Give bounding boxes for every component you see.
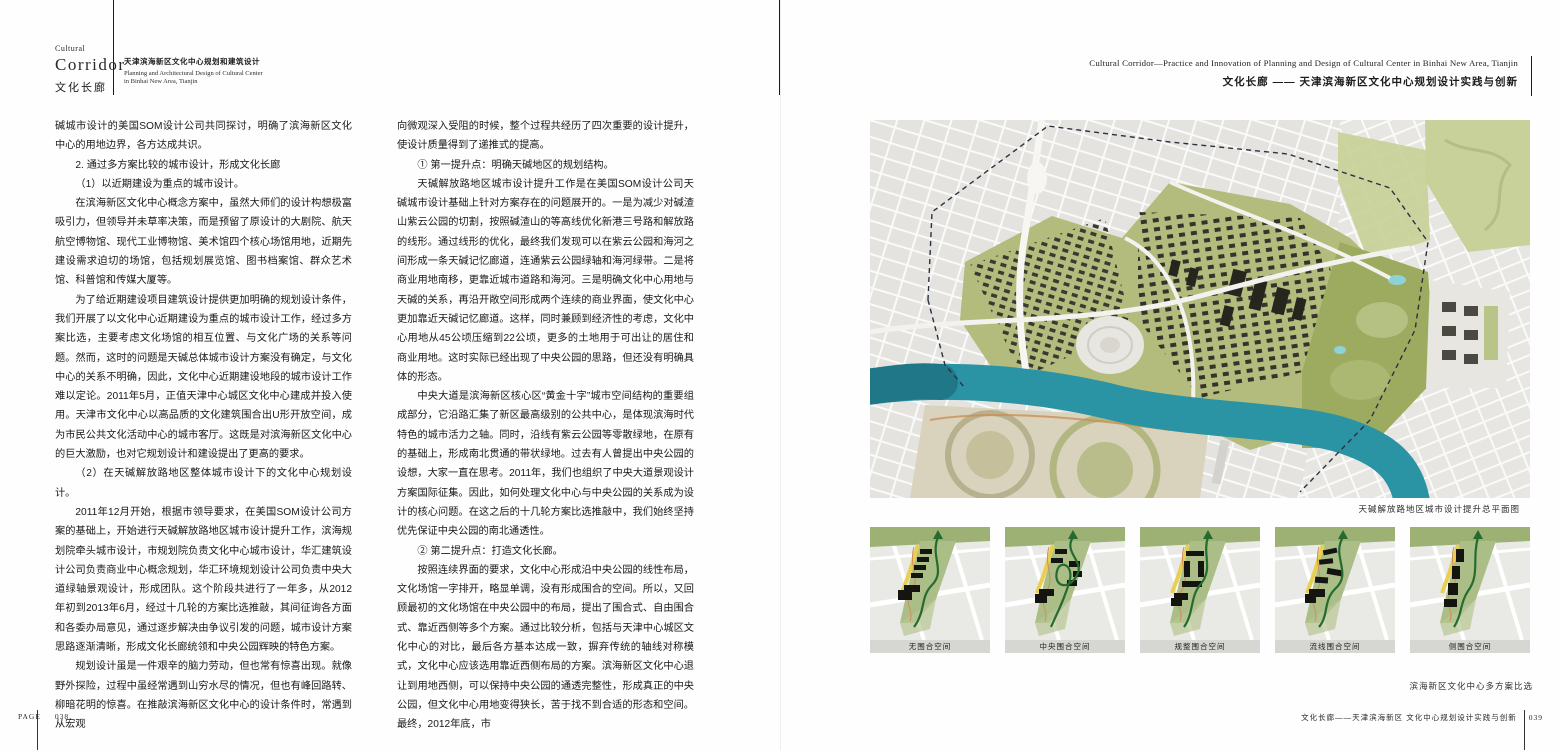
masterplan-figure: [870, 120, 1530, 498]
paragraph: 向微观深入受阻的时候，整个过程共经历了四次重要的设计提升，使设计质量得到了递推式…: [397, 117, 694, 156]
masthead-subtitle-en-line1: Planning and Architectural Design of Cul…: [124, 70, 314, 78]
masthead-subtitle-en: Planning and Architectural Design of Cul…: [124, 70, 314, 86]
masthead-subtitle-zh: 天津滨海新区文化中心规划和建筑设计: [124, 56, 314, 67]
scheme-card-5: 侧围合空间: [1410, 527, 1530, 653]
paragraph: ② 第二提升点：打造文化长廊。: [397, 542, 694, 561]
masthead-rule: [113, 0, 114, 95]
right-header-rule: [1531, 56, 1532, 96]
masterplan-caption: 天碱解放路地区城市设计提升总平面图: [1130, 503, 1520, 515]
text-column-2: 向微观深入受阻的时候，整个过程共经历了四次重要的设计提升，使设计质量得到了递推式…: [397, 117, 694, 735]
scheme-caption: 侧围合空间: [1410, 640, 1530, 653]
right-page-header: Cultural Corridor—Practice and Innovatio…: [1089, 58, 1518, 89]
right-footer-rule: [1524, 710, 1525, 750]
left-footer-rule: [37, 710, 38, 750]
paragraph: 碱城市设计的美国SOM设计公司共同探讨，明确了滨海新区文化中心的用地边界，各方达…: [55, 117, 352, 156]
masterplan-rendering: [870, 120, 1530, 498]
scheme-card-1: 无围合空间: [870, 527, 990, 653]
scheme-caption: 中央围合空间: [1005, 640, 1125, 653]
masthead-kicker: Cultural: [55, 44, 113, 53]
page-gutter-line: [780, 0, 781, 750]
text-column-1: 碱城市设计的美国SOM设计公司共同探讨，明确了滨海新区文化中心的用地边界，各方达…: [55, 117, 352, 735]
paragraph: 按照连续界面的要求，文化中心形成沿中央公园的线性布局，文化场馆一字排开，略显单调…: [397, 561, 694, 735]
scheme-diagram-side-enclosure: [1410, 527, 1530, 640]
scheme-card-4: 流线围合空间: [1275, 527, 1395, 653]
masthead-title-zh: 文化长廊: [55, 79, 113, 95]
book-spread: Cultural Corridor 文化长廊 天津滨海新区文化中心规划和建筑设计…: [0, 0, 1559, 750]
left-footer: PAGE038: [18, 712, 69, 721]
center-top-rule: [779, 0, 780, 95]
right-header-zh: 文化长廊 —— 天津滨海新区文化中心规划设计实践与创新: [1089, 74, 1518, 89]
paragraph: 2. 通过多方案比较的城市设计，形成文化长廊: [55, 156, 352, 175]
masthead: Cultural Corridor 文化长廊: [55, 44, 113, 95]
right-footer: 文化长廊——天津滨海新区 文化中心规划设计实践与创新039: [1301, 712, 1543, 723]
scheme-card-3: 规整围合空间: [1140, 527, 1260, 653]
schemes-caption: 滨海新区文化中心多方案比选: [1140, 680, 1533, 692]
left-page-number: 038: [55, 712, 69, 721]
scheme-diagram-curvilinear-enclosure: [1275, 527, 1395, 640]
scheme-card-2: 中央围合空间: [1005, 527, 1125, 653]
masthead-title-en: Corridor: [55, 55, 113, 75]
paragraph: 2011年12月开始，根据市领导要求，在美国SOM设计公司方案的基础上，开始进行…: [55, 503, 352, 657]
paragraph: （2）在天碱解放路地区整体城市设计下的文化中心规划设计。: [55, 464, 352, 503]
right-header-en: Cultural Corridor—Practice and Innovatio…: [1089, 58, 1518, 68]
scheme-caption: 规整围合空间: [1140, 640, 1260, 653]
paragraph: 为了给近期建设项目建筑设计提供更加明确的规划设计条件，我们开展了以文化中心近期建…: [55, 291, 352, 465]
scheme-caption: 流线围合空间: [1275, 640, 1395, 653]
paragraph: 规划设计虽是一件艰辛的脑力劳动，但也常有惊喜出现。就像野外探险，过程中虽经常遇到…: [55, 657, 352, 734]
paragraph: 天碱解放路地区城市设计提升工作是在美国SOM设计公司天碱城市设计基础上针对方案存…: [397, 175, 694, 387]
masthead-subtitle-en-line2: in Binhai New Area, Tianjin: [124, 78, 314, 86]
masthead-subtitle: 天津滨海新区文化中心规划和建筑设计 Planning and Architect…: [124, 56, 314, 86]
scheme-diagram-central-enclosure: [1005, 527, 1125, 640]
right-footer-title: 文化长廊——天津滨海新区 文化中心规划设计实践与创新: [1301, 713, 1517, 722]
paragraph: 中央大道是滨海新区核心区“黄金十字”城市空间结构的重要组成部分，它沿路汇集了新区…: [397, 387, 694, 541]
scheme-caption: 无围合空间: [870, 640, 990, 653]
right-page-number: 039: [1529, 713, 1543, 722]
scheme-diagram-no-enclosure: [870, 527, 990, 640]
paragraph: （1）以近期建设为重点的城市设计。: [55, 175, 352, 194]
scheme-comparison-row: 无围合空间: [870, 527, 1530, 653]
paragraph: ① 第一提升点：明确天碱地区的规划结构。: [397, 156, 694, 175]
paragraph: 在滨海新区文化中心概念方案中，虽然大师们的设计构想极富吸引力，但领导并未草率决策…: [55, 194, 352, 290]
scheme-diagram-regular-enclosure: [1140, 527, 1260, 640]
